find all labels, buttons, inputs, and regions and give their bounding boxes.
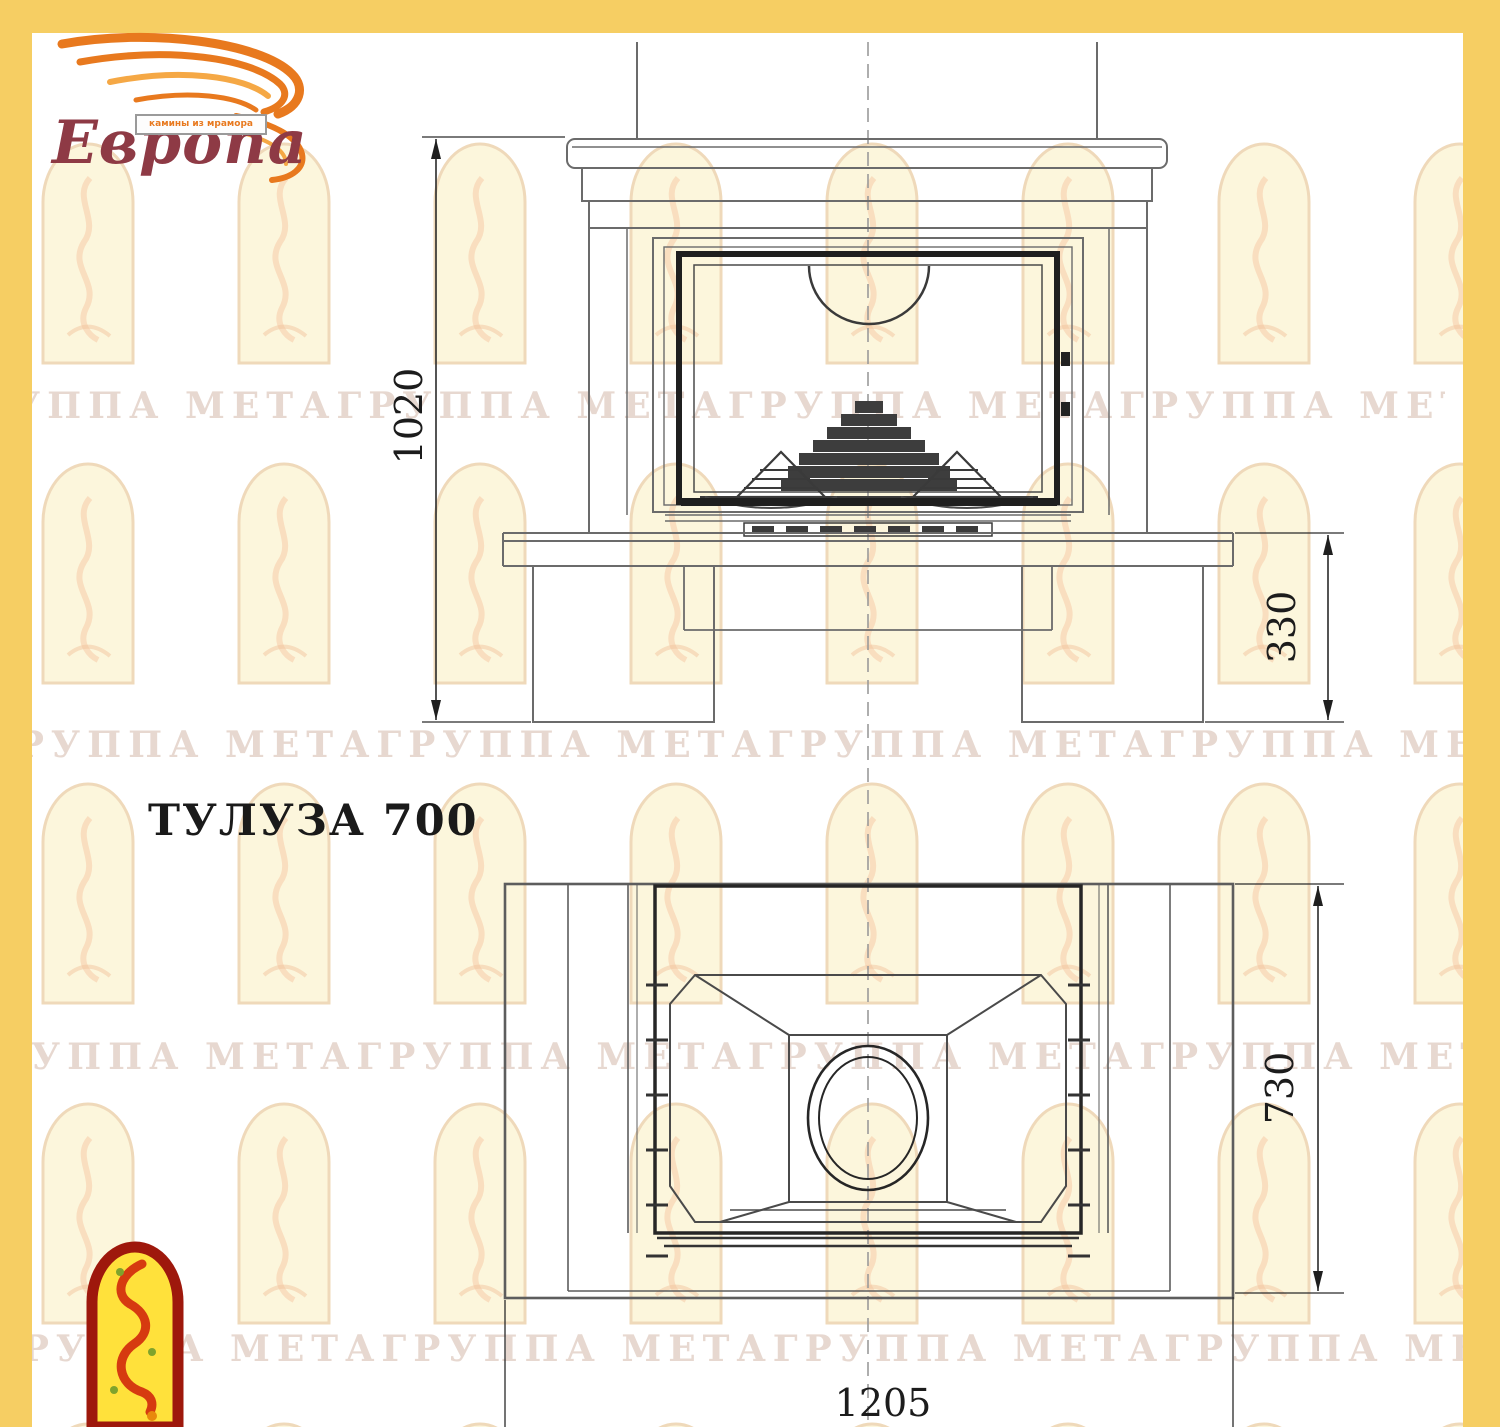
page-title: ТУЛУЗА 700 — [148, 796, 479, 846]
brand-tagline: камины из мрамора — [135, 114, 267, 135]
dimension-label-plan-width: 1205 — [823, 1382, 943, 1424]
emblem-arch — [92, 1247, 178, 1427]
brand-logo: Европа камины из мрамора — [40, 30, 320, 210]
technical-drawing — [0, 0, 1500, 1427]
chimney-lines — [637, 42, 1097, 139]
right-foot — [1022, 566, 1203, 722]
plan-outline — [505, 884, 1233, 1298]
dimension-label-plan-depth: 730 — [1259, 1028, 1301, 1148]
firebox-arc — [809, 266, 929, 324]
catalog-page: ГРУППА МЕТАГРУППА МЕТАГРУППА МЕТАГРУППА … — [0, 0, 1500, 1427]
left-foot — [533, 566, 714, 722]
plan-view-drawing — [505, 884, 1233, 1298]
firebird-emblem — [80, 1240, 200, 1427]
dimension-label-front-height: 1020 — [388, 356, 430, 476]
door-handle — [1061, 352, 1070, 366]
dimension-label-base-height: 330 — [1261, 567, 1303, 687]
